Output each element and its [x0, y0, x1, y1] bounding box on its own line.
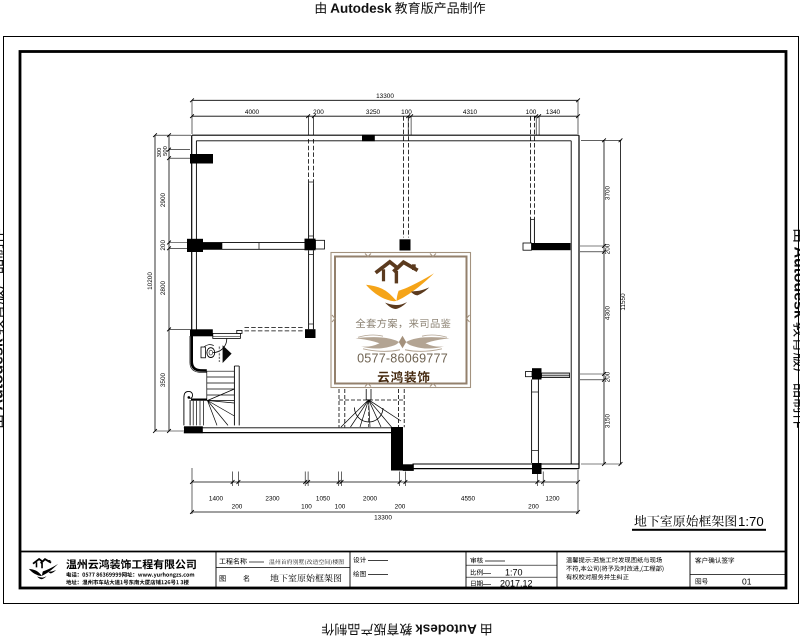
- svg-text:100: 100: [301, 503, 312, 510]
- svg-text:4000: 4000: [245, 109, 260, 116]
- svg-text:100: 100: [526, 109, 537, 116]
- svg-text:2017.12: 2017.12: [500, 578, 533, 588]
- svg-text:1:70: 1:70: [738, 514, 764, 529]
- svg-text:13300: 13300: [376, 93, 394, 100]
- svg-text:13300: 13300: [374, 515, 392, 522]
- svg-text:4550: 4550: [461, 496, 476, 503]
- svg-text:4300: 4300: [605, 305, 612, 320]
- svg-text:100: 100: [335, 503, 346, 510]
- svg-text:100: 100: [401, 109, 412, 116]
- svg-text:200: 200: [605, 371, 612, 382]
- svg-text:300: 300: [157, 148, 163, 158]
- svg-text:3700: 3700: [605, 185, 612, 200]
- svg-text:0577-86069777: 0577-86069777: [357, 351, 448, 365]
- svg-text:3150: 3150: [605, 413, 612, 428]
- svg-text:11550: 11550: [620, 293, 627, 311]
- svg-text:1340: 1340: [546, 109, 561, 116]
- svg-text:500: 500: [163, 146, 169, 156]
- svg-text:2800: 2800: [160, 280, 167, 295]
- svg-text:1200: 1200: [545, 496, 560, 503]
- svg-text:2300: 2300: [265, 496, 280, 503]
- svg-text:200: 200: [528, 503, 539, 510]
- svg-text:3250: 3250: [366, 109, 381, 116]
- svg-text:200: 200: [232, 503, 243, 510]
- svg-text:1:70: 1:70: [505, 567, 523, 577]
- svg-text:1050: 1050: [316, 496, 331, 503]
- svg-text:01: 01: [742, 576, 752, 586]
- svg-text:1400: 1400: [209, 496, 224, 503]
- svg-text:10200: 10200: [147, 272, 154, 290]
- svg-text:2900: 2900: [160, 192, 167, 207]
- svg-text:200: 200: [395, 503, 406, 510]
- svg-text:2000: 2000: [363, 496, 378, 503]
- svg-text:200: 200: [313, 109, 324, 116]
- svg-text:200: 200: [160, 240, 167, 251]
- svg-text:200: 200: [605, 243, 612, 254]
- svg-text:4310: 4310: [463, 109, 478, 116]
- svg-text:3500: 3500: [160, 372, 167, 387]
